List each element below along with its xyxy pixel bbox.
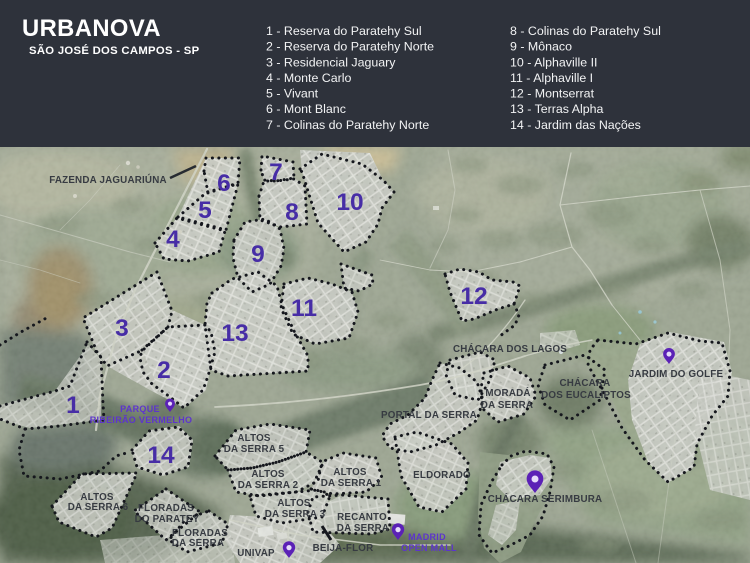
svg-text:12 - Montserrat: 12 - Montserrat <box>510 87 595 101</box>
svg-text:FAZENDA JAGUARIÚNA: FAZENDA JAGUARIÚNA <box>49 174 167 186</box>
svg-text:DA SERRA 2: DA SERRA 2 <box>238 480 299 491</box>
svg-text:1 - Reserva do Paratehy Sul: 1 - Reserva do Paratehy Sul <box>266 24 422 38</box>
svg-text:8 - Colinas do Paratehy Sul: 8 - Colinas do Paratehy Sul <box>510 24 661 38</box>
svg-text:UNIVAP: UNIVAP <box>237 548 275 559</box>
svg-text:2: 2 <box>157 357 171 384</box>
svg-text:CHÁCARA SERIMBURA: CHÁCARA SERIMBURA <box>488 493 603 505</box>
svg-text:BEIJA-FLOR: BEIJA-FLOR <box>313 543 374 554</box>
svg-text:14 - Jardim das Nações: 14 - Jardim das Nações <box>510 118 641 132</box>
svg-text:4 - Monte Carlo: 4 - Monte Carlo <box>266 71 352 85</box>
svg-text:7: 7 <box>269 159 283 186</box>
svg-text:3: 3 <box>115 315 129 342</box>
svg-text:ALTOS: ALTOS <box>333 467 367 478</box>
svg-text:ALTOS: ALTOS <box>237 433 271 444</box>
svg-text:DA SERRA: DA SERRA <box>172 538 224 549</box>
svg-text:DA SERRA 5: DA SERRA 5 <box>224 444 285 455</box>
svg-text:URBANOVA: URBANOVA <box>22 15 161 42</box>
svg-text:CHÁCARA DOS LAGOS: CHÁCARA DOS LAGOS <box>453 343 567 355</box>
svg-text:DA SERRA 3: DA SERRA 3 <box>265 509 326 520</box>
svg-text:DA SERRA 6: DA SERRA 6 <box>68 502 129 513</box>
svg-text:DOS EUCALIPTOS: DOS EUCALIPTOS <box>541 390 631 401</box>
svg-text:ALTOS: ALTOS <box>251 469 285 480</box>
svg-text:SÃO JOSÉ DOS CAMPOS - SP: SÃO JOSÉ DOS CAMPOS - SP <box>29 44 200 57</box>
svg-text:ALTOS: ALTOS <box>277 498 311 509</box>
svg-text:5: 5 <box>198 197 212 224</box>
svg-text:ELDORADO: ELDORADO <box>413 470 471 481</box>
svg-text:13 - Terras Alpha: 13 - Terras Alpha <box>510 102 604 116</box>
svg-text:2 - Reserva do Paratehy Norte: 2 - Reserva do Paratehy Norte <box>266 40 434 54</box>
svg-text:11 - Alphaville I: 11 - Alphaville I <box>510 71 593 85</box>
svg-text:PORTAL DA SERRA: PORTAL DA SERRA <box>381 410 477 421</box>
svg-text:DA SERRA 1: DA SERRA 1 <box>321 478 382 489</box>
svg-text:10: 10 <box>336 189 363 216</box>
svg-text:DO PARATEY: DO PARATEY <box>135 514 200 525</box>
svg-text:9: 9 <box>251 241 265 268</box>
svg-text:4: 4 <box>166 226 180 253</box>
svg-text:MADRID: MADRID <box>408 532 446 542</box>
svg-text:DA SERRA: DA SERRA <box>337 523 389 534</box>
svg-text:13: 13 <box>221 320 248 347</box>
svg-text:FLORADAS: FLORADAS <box>138 503 194 514</box>
svg-text:MORADÁ: MORADÁ <box>485 387 530 399</box>
svg-text:12: 12 <box>460 283 487 310</box>
svg-text:7 - Colinas do Paratehy Norte: 7 - Colinas do Paratehy Norte <box>266 118 429 132</box>
svg-text:RIBEIRÃO VERMELHO: RIBEIRÃO VERMELHO <box>90 415 193 425</box>
svg-text:9 - Mônaco: 9 - Mônaco <box>510 40 572 54</box>
svg-text:11: 11 <box>291 295 317 322</box>
svg-text:PARQUE: PARQUE <box>120 404 160 414</box>
svg-text:CHÁCARA: CHÁCARA <box>560 377 611 389</box>
svg-text:5 - Vivant: 5 - Vivant <box>266 87 319 101</box>
svg-text:OPEN MALL: OPEN MALL <box>401 543 457 553</box>
svg-text:RECANTO: RECANTO <box>337 512 387 523</box>
svg-text:6: 6 <box>217 170 231 197</box>
svg-text:1: 1 <box>66 392 80 419</box>
svg-text:8: 8 <box>285 199 299 226</box>
svg-text:JARDIM DO GOLFE: JARDIM DO GOLFE <box>629 369 724 380</box>
svg-text:14: 14 <box>147 442 175 469</box>
svg-text:6 - Mont Blanc: 6 - Mont Blanc <box>266 102 346 116</box>
svg-text:DA SERRA: DA SERRA <box>481 400 533 411</box>
svg-text:3 - Residencial Jaguary: 3 - Residencial Jaguary <box>266 55 396 69</box>
svg-text:10 - Alphaville II: 10 - Alphaville II <box>510 55 597 69</box>
